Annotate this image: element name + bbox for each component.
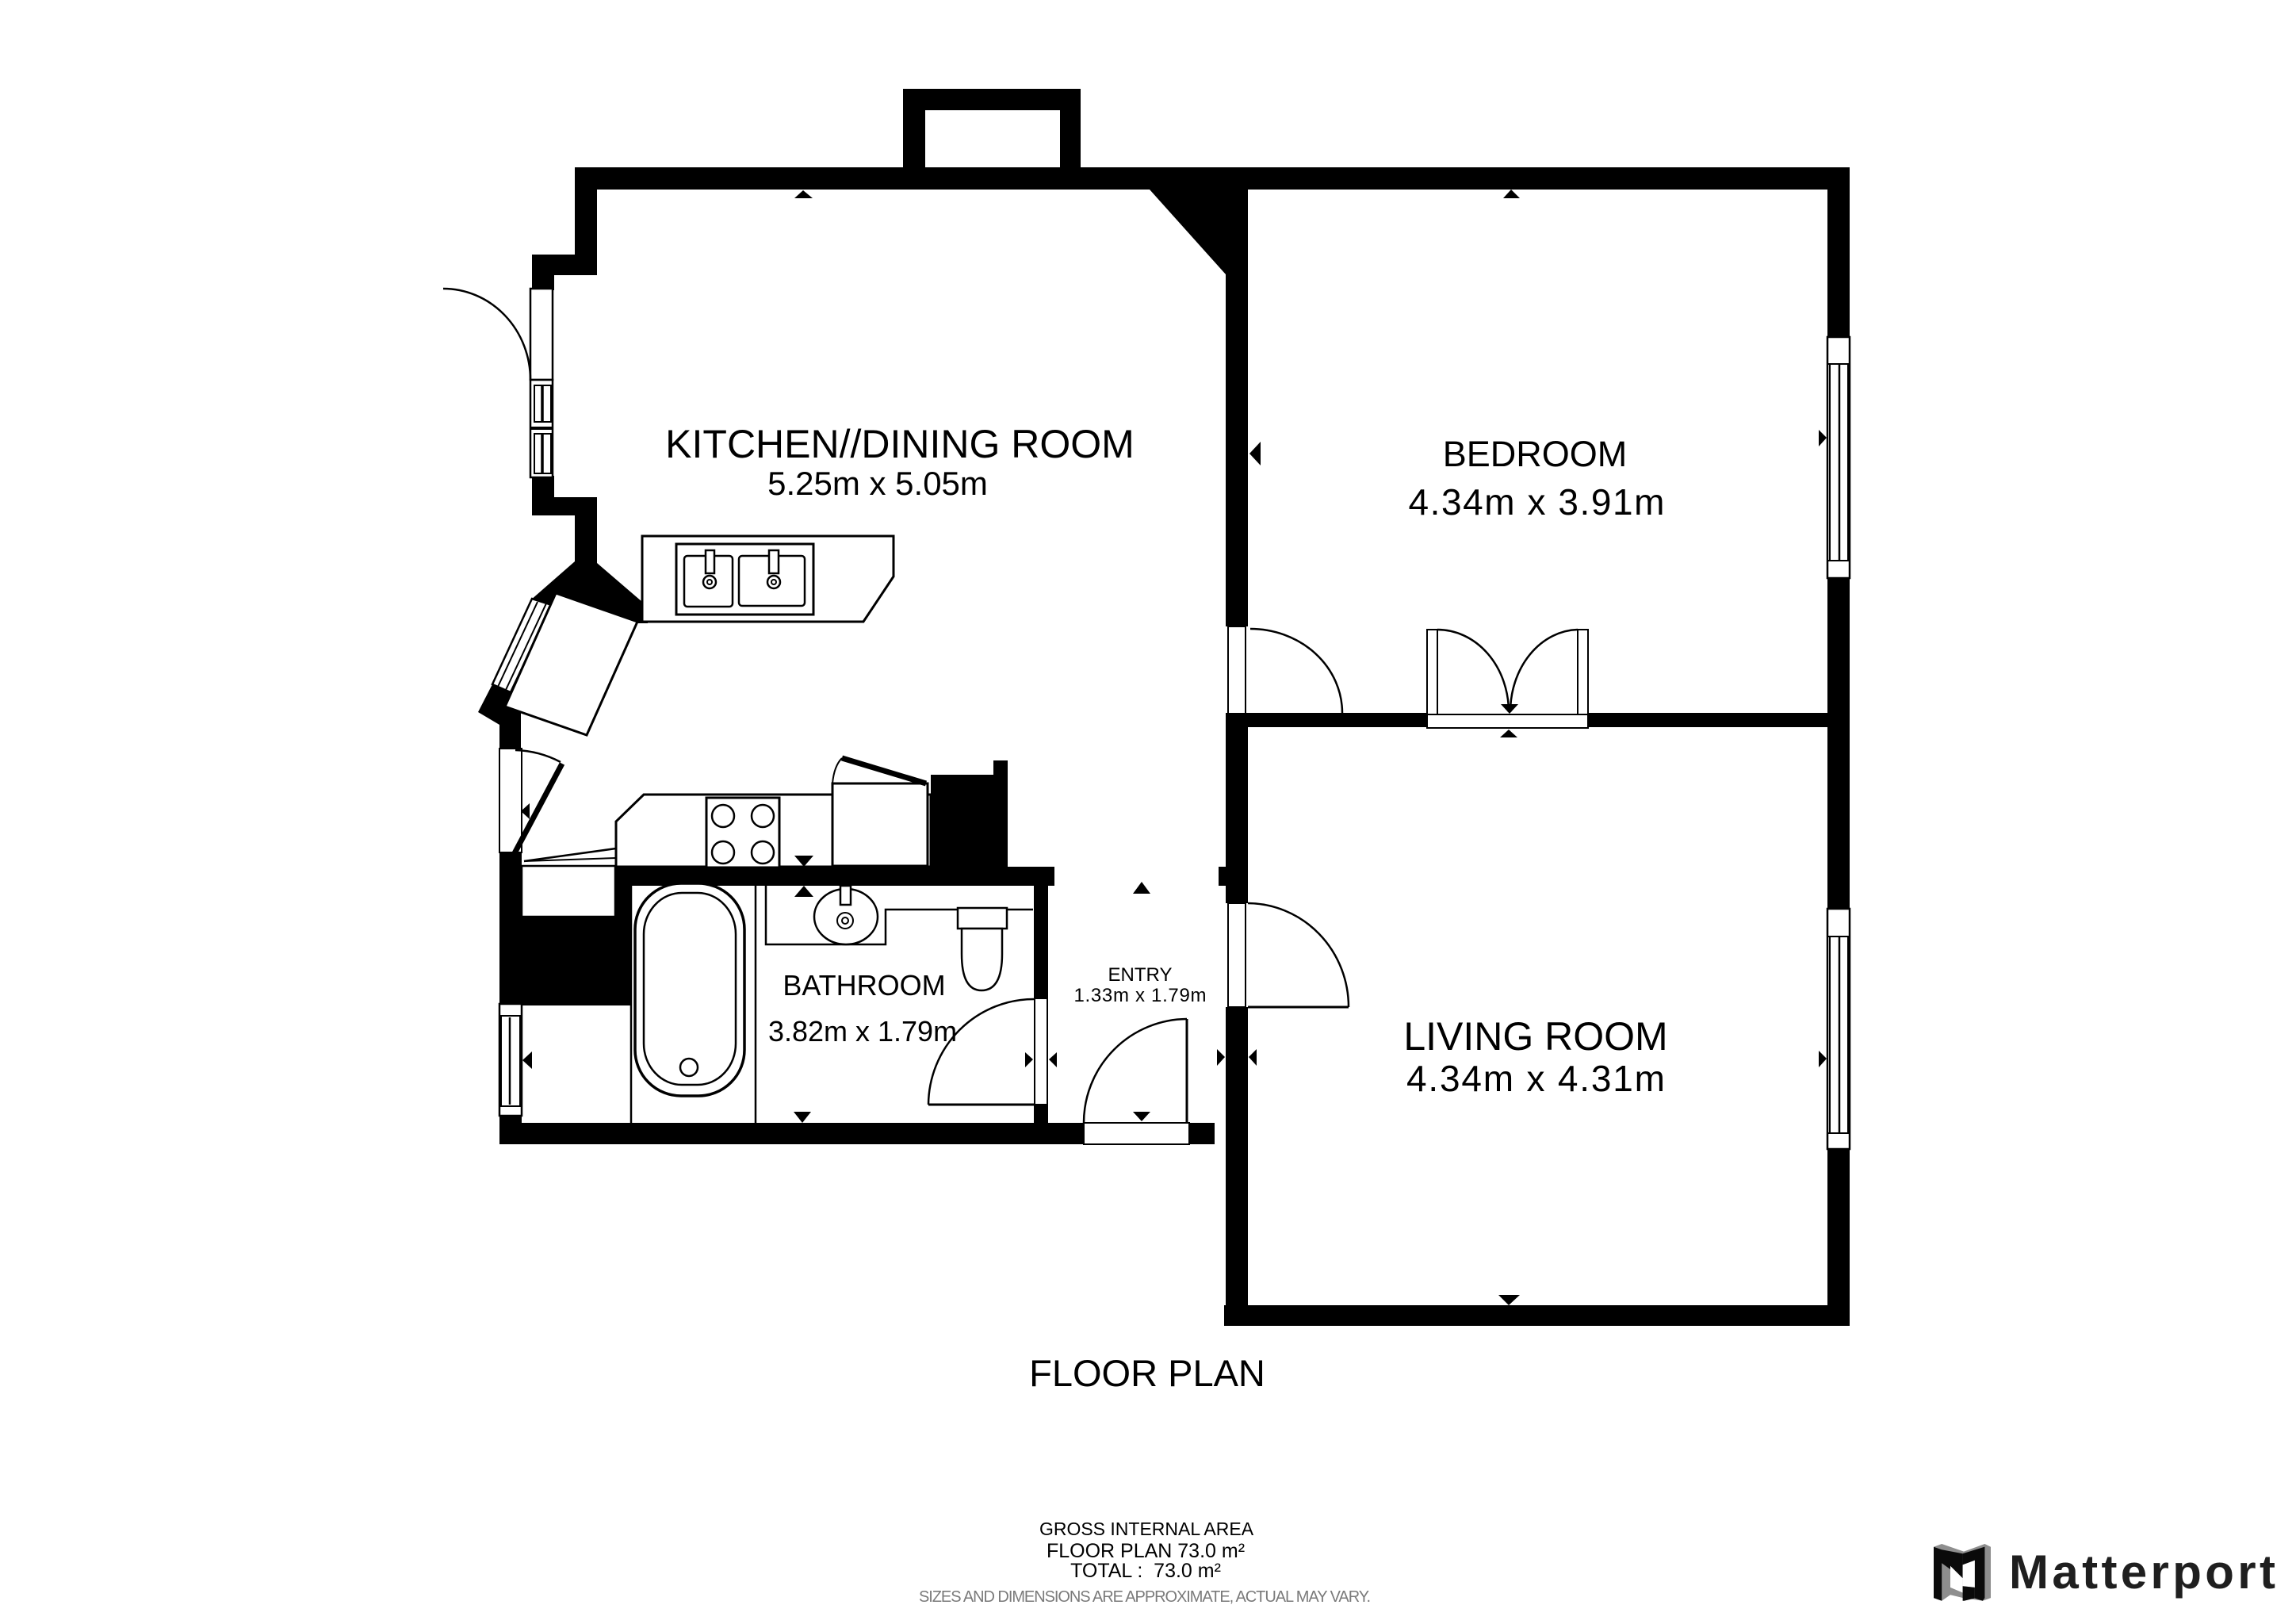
svg-text:ENTRY: ENTRY (1108, 964, 1173, 986)
svg-text:FLOOR PLAN 73.0 m²: FLOOR PLAN 73.0 m² (1047, 1540, 1245, 1562)
svg-text:BEDROOM: BEDROOM (1443, 434, 1628, 474)
svg-text:4.34m x 4.31m: 4.34m x 4.31m (1406, 1058, 1665, 1099)
svg-text:1.33m x 1.79m: 1.33m x 1.79m (1074, 985, 1207, 1006)
svg-text:TOTAL : 73.0 m²: TOTAL : 73.0 m² (1070, 1560, 1221, 1582)
svg-text:LIVING ROOM: LIVING ROOM (1403, 1014, 1667, 1059)
svg-text:5.25m x 5.05m: 5.25m x 5.05m (767, 465, 988, 502)
svg-text:4.34m x 3.91m: 4.34m x 3.91m (1409, 481, 1665, 523)
svg-text:3.82m x 1.79m: 3.82m x 1.79m (768, 1015, 957, 1048)
svg-text:FLOOR PLAN: FLOOR PLAN (1029, 1352, 1265, 1394)
svg-text:SIZES AND DIMENSIONS ARE APPRO: SIZES AND DIMENSIONS ARE APPROXIMATE, AC… (919, 1588, 1371, 1606)
svg-text:BATHROOM: BATHROOM (783, 969, 945, 1002)
svg-text:GROSS INTERNAL AREA: GROSS INTERNAL AREA (1039, 1519, 1254, 1539)
svg-text:KITCHEN//DINING ROOM: KITCHEN//DINING ROOM (665, 422, 1135, 466)
